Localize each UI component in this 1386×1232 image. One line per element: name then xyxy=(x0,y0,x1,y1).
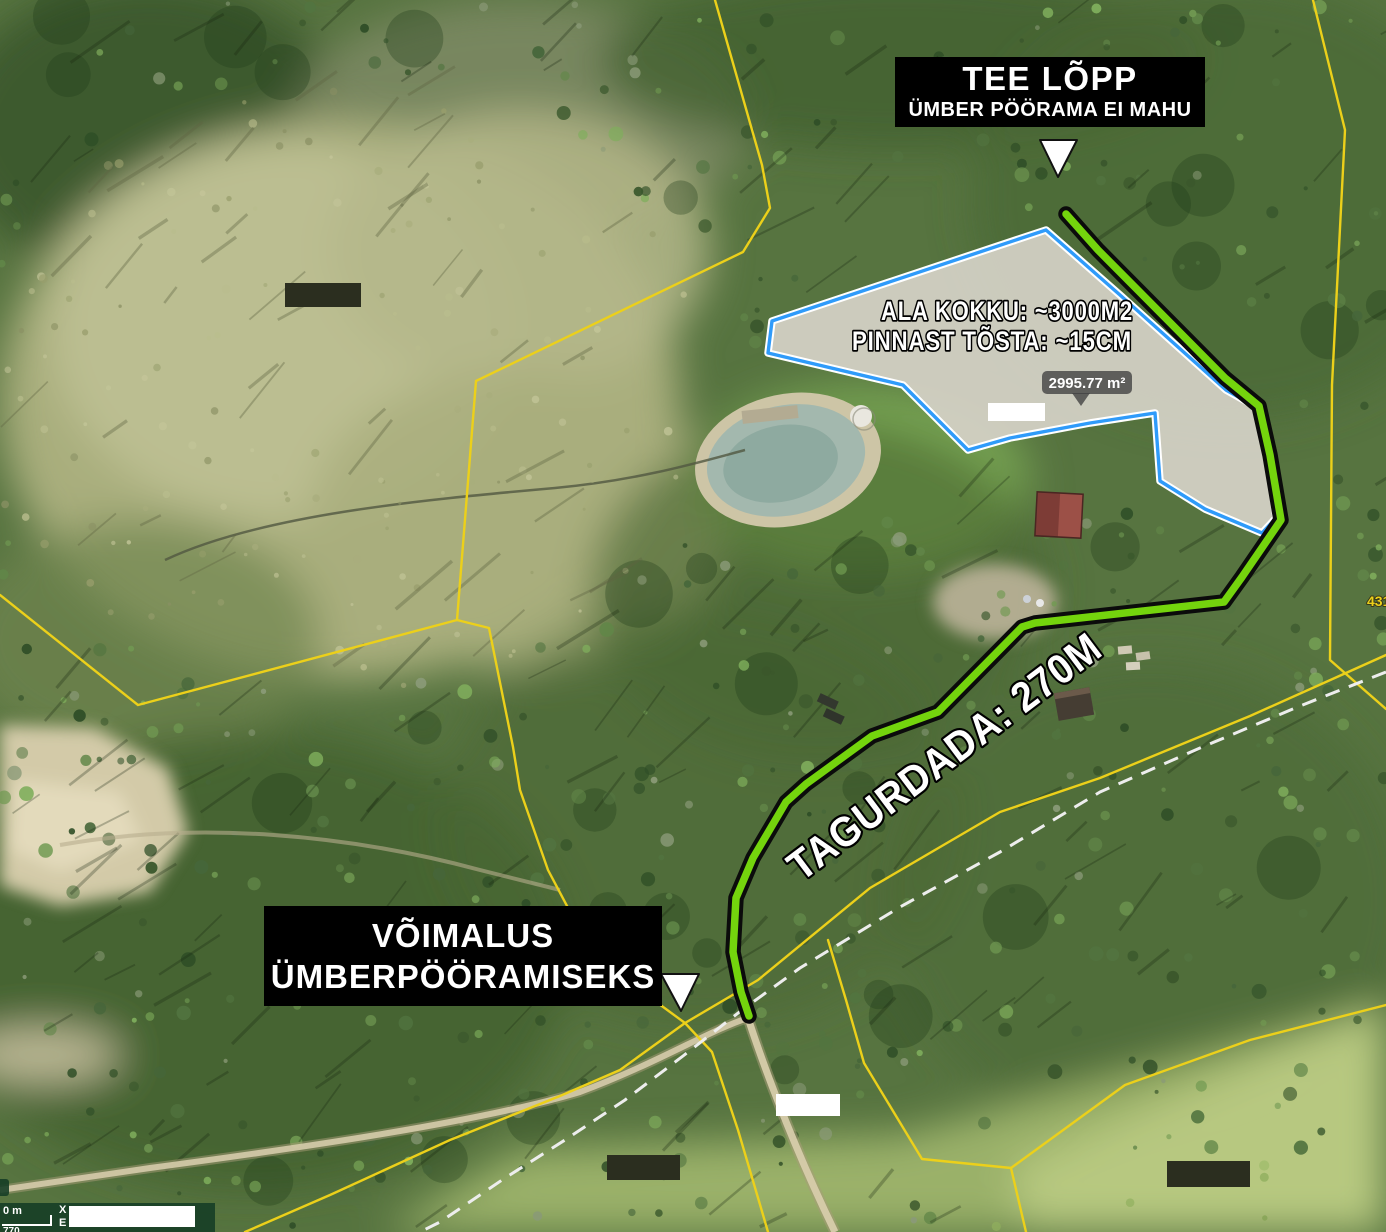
scale-value: 770 xyxy=(3,1226,20,1232)
turnaround-line2: ÜMBERPÖÖRAMISEKS xyxy=(264,956,662,997)
scale-label: 0 m xyxy=(3,1205,22,1217)
redaction-box xyxy=(607,1155,680,1180)
redaction-box xyxy=(776,1094,840,1116)
house-red-roof xyxy=(1035,492,1083,538)
parcel-number-label: 431 xyxy=(1367,593,1386,609)
car xyxy=(1036,599,1044,607)
road-end-subtitle: ÜMBER PÖÖRAMA EI MAHU xyxy=(895,99,1205,122)
measurement-value: 2995.77 m² xyxy=(1049,375,1126,392)
scale-bar-tick xyxy=(50,1215,52,1226)
redaction-box xyxy=(285,283,361,307)
area-note-line2: PINNAST TÕSTA: ~15CM xyxy=(852,325,1132,356)
map-ui-panel-corner xyxy=(0,1179,9,1196)
turnaround-label: VÕIMALUS ÜMBERPÖÖRAMISEKS xyxy=(264,906,662,1006)
coord-x-label: X xyxy=(59,1204,66,1216)
redaction-box xyxy=(988,403,1045,421)
car xyxy=(1023,595,1031,603)
turnaround-line1: VÕIMALUS xyxy=(264,915,662,956)
redaction-box-coordinates xyxy=(69,1206,195,1227)
area-note-line1: ALA KOKKU: ~3000M2 xyxy=(881,296,1133,326)
aerial-map[interactable]: 431 ALA KOKKU: ~3000M2 PINNAST TÕSTA: ~1… xyxy=(0,0,1386,1232)
statusbar: 0 m 770 X E xyxy=(0,1203,215,1232)
terrain-layer xyxy=(0,0,1386,1232)
map-viewport[interactable]: 431 ALA KOKKU: ~3000M2 PINNAST TÕSTA: ~1… xyxy=(0,0,1386,1232)
road-end-label: TEE LÕPP ÜMBER PÖÖRAMA EI MAHU xyxy=(895,57,1205,127)
coord-y-label: E xyxy=(59,1217,66,1229)
road-end-title: TEE LÕPP xyxy=(895,62,1205,97)
redaction-box xyxy=(1167,1161,1250,1187)
